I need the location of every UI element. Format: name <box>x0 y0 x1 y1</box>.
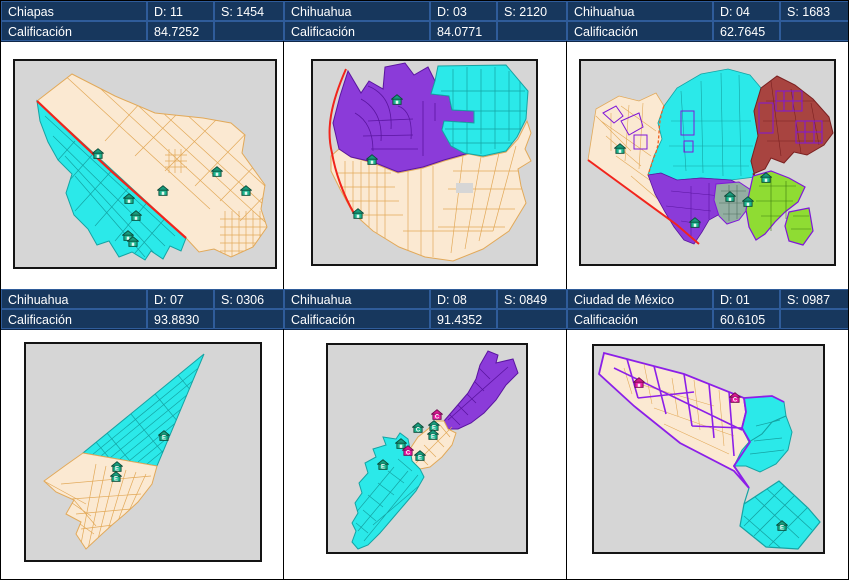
section-cell: S: 2120 <box>497 1 567 21</box>
score-label-cell: Calificación <box>284 21 430 41</box>
panel-header: Chihuahua D: 07 S: 0306 Calificación 93.… <box>1 289 283 330</box>
map-chihuahua-d04 <box>581 61 834 264</box>
empty-cell <box>780 309 849 329</box>
district-cell: D: 07 <box>147 289 214 309</box>
empty-cell <box>497 21 567 41</box>
score-value-cell: 84.7252 <box>147 21 214 41</box>
score-value-cell: 91.4352 <box>430 309 497 329</box>
panel-chihuahua-d04: Chihuahua D: 04 S: 1683 Calificación 62.… <box>567 1 849 289</box>
score-value-cell: 62.7645 <box>713 21 780 41</box>
map-cdmx-d01 <box>594 346 823 552</box>
score-label-cell: Calificación <box>1 21 147 41</box>
panel-chihuahua-d08: Chihuahua D: 08 S: 0849 Calificación 91.… <box>284 289 567 580</box>
score-value-cell: 93.8830 <box>147 309 214 329</box>
state-cell: Chihuahua <box>567 1 713 21</box>
region-cyan-bottom <box>740 481 820 549</box>
map-figure[interactable] <box>13 59 277 269</box>
map-chiapas <box>15 61 275 267</box>
panel-grid: Chiapas D: 11 S: 1454 Calificación 84.72… <box>1 1 848 580</box>
map-figure[interactable]: CCEECEE <box>326 343 528 554</box>
empty-cell <box>214 21 284 41</box>
region-cream-wedge <box>599 353 750 488</box>
panel-chiapas-d11: Chiapas D: 11 S: 1454 Calificación 84.72… <box>1 1 284 289</box>
panel-chihuahua-d07: Chihuahua D: 07 S: 0306 Calificación 93.… <box>1 289 284 580</box>
state-cell: Chihuahua <box>284 1 430 21</box>
map-notch <box>456 183 473 193</box>
map-figure[interactable]: EEE <box>24 342 262 562</box>
section-cell: S: 0849 <box>497 289 567 309</box>
state-cell: Chihuahua <box>284 289 430 309</box>
empty-cell <box>780 21 849 41</box>
panel-header: Chiapas D: 11 S: 1454 Calificación 84.72… <box>1 1 283 42</box>
panel-header: Chihuahua D: 03 S: 2120 Calificación 84.… <box>284 1 566 42</box>
region-cyan <box>648 69 761 180</box>
region-cream <box>44 453 157 549</box>
district-cell: D: 03 <box>430 1 497 21</box>
map-chihuahua-d03 <box>313 61 536 264</box>
score-label-cell: Calificación <box>1 309 147 329</box>
section-cell: S: 1683 <box>780 1 849 21</box>
section-cell: S: 1454 <box>214 1 284 21</box>
score-label-cell: Calificación <box>284 309 430 329</box>
panel-header: Chihuahua D: 04 S: 1683 Calificación 62.… <box>567 1 849 42</box>
map-figure[interactable]: CE <box>592 344 825 554</box>
panel-cdmx-d01: Ciudad de México D: 01 S: 0987 Calificac… <box>567 289 849 580</box>
map-chihuahua-d07 <box>26 344 260 560</box>
state-cell: Chihuahua <box>1 289 147 309</box>
score-value-cell: 84.0771 <box>430 21 497 41</box>
score-label-cell: Calificación <box>567 21 713 41</box>
district-cell: D: 11 <box>147 1 214 21</box>
district-cell: D: 01 <box>713 289 780 309</box>
state-cell: Ciudad de México <box>567 289 713 309</box>
score-value-cell: 60.6105 <box>713 309 780 329</box>
map-figure[interactable] <box>579 59 836 266</box>
region-purple <box>444 351 518 429</box>
district-score-report: Chiapas D: 11 S: 1454 Calificación 84.72… <box>0 0 849 580</box>
region-green-2 <box>785 208 813 245</box>
map-chihuahua-d08 <box>328 345 526 552</box>
panel-header: Ciudad de México D: 01 S: 0987 Calificac… <box>567 289 849 330</box>
empty-cell <box>497 309 567 329</box>
section-cell: S: 0306 <box>214 289 284 309</box>
district-cell: D: 08 <box>430 289 497 309</box>
panel-header: Chihuahua D: 08 S: 0849 Calificación 91.… <box>284 289 566 330</box>
district-cell: D: 04 <box>713 1 780 21</box>
map-figure[interactable] <box>311 59 538 266</box>
score-label-cell: Calificación <box>567 309 713 329</box>
section-cell: S: 0987 <box>780 289 849 309</box>
panel-chihuahua-d03: Chihuahua D: 03 S: 2120 Calificación 84.… <box>284 1 567 289</box>
empty-cell <box>214 309 284 329</box>
state-cell: Chiapas <box>1 1 147 21</box>
